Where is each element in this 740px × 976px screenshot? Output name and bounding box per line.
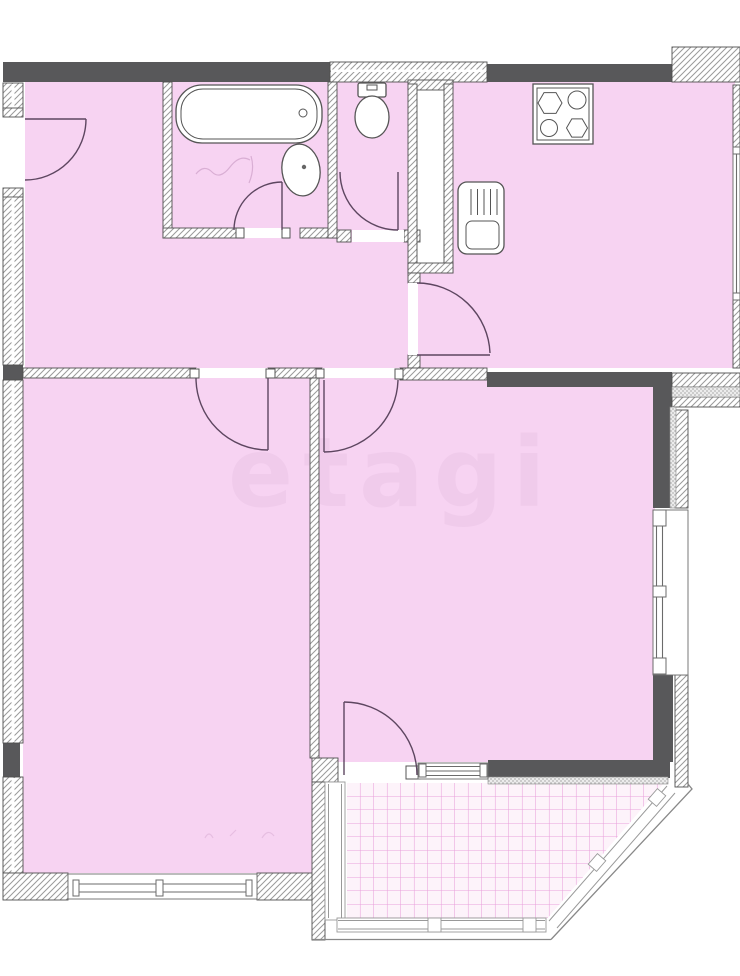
toilet-bowl: [355, 96, 389, 138]
opening-room-living: [322, 368, 400, 378]
stove-4-burner-icon: [533, 84, 593, 144]
toilet-icon: [355, 83, 389, 138]
bathtub-icon: [176, 85, 322, 143]
window-mullion: [156, 880, 163, 896]
wall-hall-bottom-b: [268, 368, 322, 378]
insulation-right-wall: [670, 407, 676, 508]
window-kitchen-right-edge: [733, 147, 740, 300]
wall-top-kitchen: [487, 64, 672, 82]
window-room-living-right: [653, 510, 688, 675]
window-cap: [733, 147, 740, 154]
wall-balcony-corner-block: [312, 758, 338, 782]
wall-kitchen-right-upper: [733, 85, 740, 147]
wall-left-block-low: [3, 743, 20, 777]
opening-room-left: [196, 368, 268, 378]
window-mullion: [653, 586, 666, 597]
insulation-living-bottom: [488, 777, 668, 784]
window-cap: [419, 764, 426, 777]
wall-right-block-b: [672, 397, 740, 407]
window-cap: [73, 880, 79, 896]
wall-left-gap-d: [12, 778, 15, 872]
insulation-right-block: [672, 387, 740, 397]
opening-toilet: [352, 230, 404, 242]
jamb-bathroom-b: [282, 228, 290, 238]
wall-right-lower: [653, 675, 673, 762]
entrance-jamb-bottom: [3, 188, 23, 197]
wall-top-toilet-band-gap: [331, 70, 486, 73]
jamb-room-left-b: [266, 369, 275, 378]
vent-shaft-wall-right: [444, 84, 453, 273]
glazing-post: [428, 918, 441, 932]
vent-shaft-interior: [417, 90, 444, 263]
wall-bathroom-bottom: [163, 228, 240, 238]
opening-balcony: [345, 766, 406, 778]
jamb-room-left-a: [190, 369, 199, 378]
wall-balcony-left: [312, 782, 325, 940]
wall-top-left: [3, 62, 330, 82]
kitchen-sink-unit-icon: [458, 182, 504, 254]
wall-kitchen-door-jamb-bottom: [408, 355, 420, 368]
jamb-room-living-b: [395, 369, 403, 379]
wall-bottom-left-corner: [3, 873, 68, 900]
window-beside-balcony-door: [418, 763, 488, 779]
wall-hall-bottom-a: [23, 368, 196, 378]
jamb-bathroom-a: [236, 228, 244, 238]
window-cap: [246, 880, 252, 896]
jamb-room-living-a: [316, 369, 324, 378]
floor-plan-page: etagi: [0, 0, 740, 976]
wall-kitchen-room-divider: [487, 372, 672, 387]
watermark-text: etagi: [228, 417, 555, 529]
window-room-left-bottom: [68, 874, 257, 899]
wall-hall-bottom-c: [400, 368, 487, 380]
vent-shaft-wall-left: [408, 84, 417, 273]
wall-kitchen-right-lower: [733, 300, 740, 368]
window-cap: [480, 764, 487, 777]
wall-right-block-a: [672, 373, 740, 387]
floor-plan-svg: etagi: [0, 0, 740, 976]
vent-shaft-wall-bottom: [408, 263, 453, 273]
window-cap: [733, 293, 740, 300]
wall-top-right-block: [672, 47, 740, 82]
opening-kitchen: [408, 283, 418, 355]
opening-bathroom: [244, 228, 282, 238]
glazing-post: [523, 918, 536, 932]
basin-tap: [302, 165, 306, 169]
wall-living-bottom: [488, 760, 670, 778]
wall-bathroom-left: [163, 82, 172, 238]
wall-right-outer-lower: [675, 675, 688, 787]
entrance-jamb-top: [3, 108, 23, 117]
wall-kitchen-door-jamb-top: [408, 273, 420, 283]
wall-toilet-jamb-left: [337, 230, 351, 242]
wall-left-block-mid: [3, 365, 23, 380]
window-cap: [653, 510, 666, 526]
bathtub-outer: [176, 85, 322, 143]
wall-right-upper: [653, 372, 672, 508]
wall-bath-toilet-divider: [328, 82, 337, 238]
wall-rooms-divider: [310, 378, 319, 758]
wall-left-gap-c: [12, 381, 15, 742]
wall-left-gap-b: [12, 193, 15, 364]
wall-right-outer-upper: [675, 410, 688, 508]
window-cap: [653, 658, 666, 674]
